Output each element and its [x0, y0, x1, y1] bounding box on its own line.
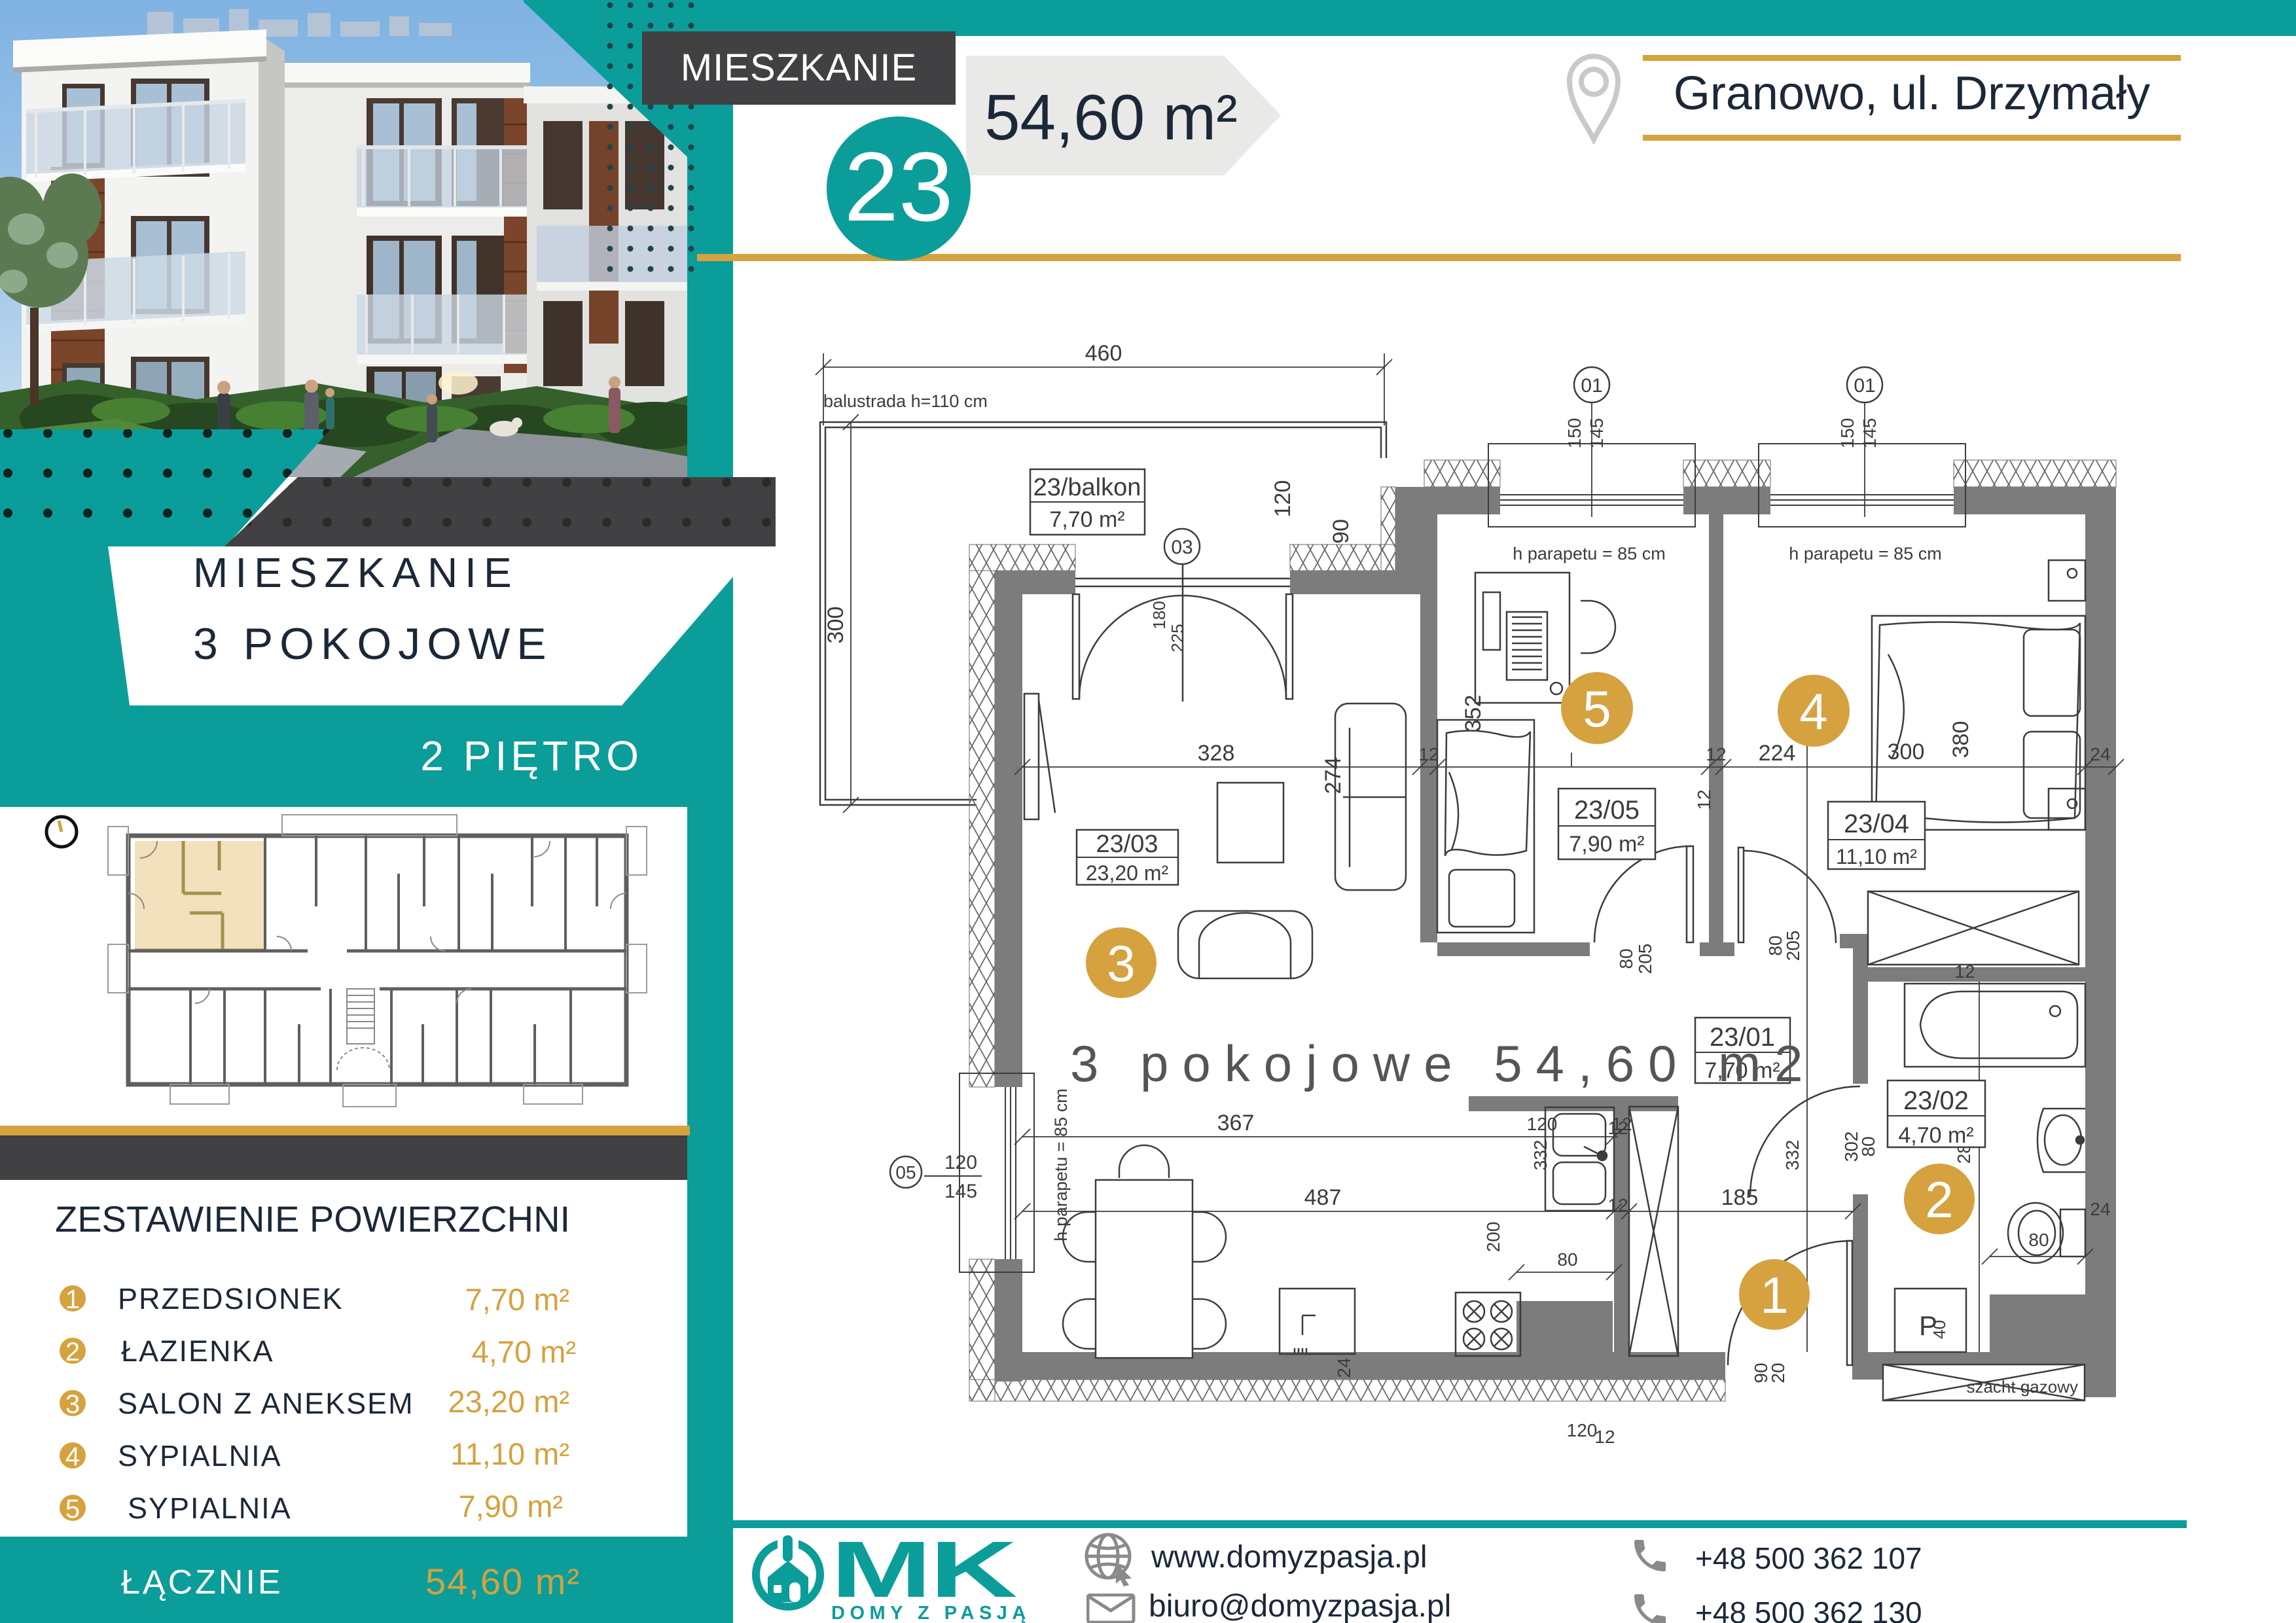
svg-text:225: 225 [1168, 624, 1187, 652]
svg-text:MK: MK [831, 1531, 1016, 1614]
svg-text:1: 1 [1760, 1266, 1788, 1324]
svg-text:24: 24 [2090, 744, 2110, 764]
svg-text:12: 12 [1706, 744, 1726, 764]
svg-text:24: 24 [2090, 1199, 2110, 1219]
svg-text:460: 460 [1085, 341, 1122, 366]
svg-text:120: 120 [1527, 1114, 1558, 1134]
svg-text:01: 01 [1854, 375, 1875, 397]
svg-text:12: 12 [1418, 744, 1439, 764]
svg-text:11,10 m²: 11,10 m² [1836, 845, 1917, 868]
svg-text:3: 3 [65, 1390, 80, 1419]
svg-text:40: 40 [1929, 1320, 1949, 1339]
svg-text:12: 12 [1694, 789, 1714, 810]
svg-text:12: 12 [1607, 1118, 1628, 1138]
svg-text:80: 80 [1858, 1136, 1878, 1156]
svg-text:2: 2 [1925, 1171, 1953, 1228]
svg-text:80: 80 [1616, 948, 1636, 969]
svg-text:23/balkon: 23/balkon [1033, 474, 1141, 501]
svg-text:120: 120 [944, 1152, 977, 1173]
svg-text:7,90 m²: 7,90 m² [1569, 832, 1644, 857]
svg-text:3 pokojowe 54,60 m2: 3 pokojowe 54,60 m2 [1070, 1035, 1817, 1092]
svg-text:23/02: 23/02 [1903, 1086, 1969, 1115]
svg-text:5: 5 [65, 1495, 80, 1524]
svg-text:80: 80 [2028, 1230, 2049, 1250]
svg-text:3 POKOJOWE: 3 POKOJOWE [193, 619, 553, 669]
svg-text:PRZEDSIONEK: PRZEDSIONEK [118, 1282, 344, 1315]
svg-text:03: 03 [1171, 537, 1193, 558]
svg-text:20: 20 [1768, 1363, 1788, 1383]
svg-text:23/05: 23/05 [1574, 796, 1640, 825]
svg-text:ŁAZIENKA: ŁAZIENKA [121, 1334, 274, 1368]
svg-text:23,20 m²: 23,20 m² [448, 1384, 569, 1419]
svg-text:7,90 m²: 7,90 m² [459, 1489, 563, 1524]
svg-text:01: 01 [1581, 375, 1602, 397]
svg-text:150: 150 [1837, 418, 1857, 449]
svg-text:h parapetu = 85 cm: h parapetu = 85 cm [1789, 544, 1941, 563]
svg-text:SYPIALNIA: SYPIALNIA [118, 1439, 282, 1472]
svg-text:h parapetu = 85 cm: h parapetu = 85 cm [1051, 1088, 1071, 1241]
svg-text:300: 300 [823, 607, 848, 644]
svg-text:SYPIALNIA: SYPIALNIA [128, 1491, 292, 1525]
svg-text:328: 328 [1198, 741, 1235, 766]
svg-text:7,70 m²: 7,70 m² [465, 1282, 569, 1317]
svg-text:205: 205 [1635, 944, 1655, 974]
svg-text:1: 1 [65, 1285, 80, 1314]
svg-text:185: 185 [1721, 1185, 1759, 1210]
svg-text:DOMY Z PASJĄ: DOMY Z PASJĄ [831, 1603, 1031, 1623]
svg-text:205: 205 [1783, 931, 1803, 961]
svg-text:352: 352 [1461, 695, 1486, 732]
svg-text:4,70 m²: 4,70 m² [1898, 1123, 1973, 1148]
svg-text:05: 05 [895, 1162, 916, 1183]
svg-text:145: 145 [1587, 418, 1607, 449]
svg-text:12: 12 [1607, 1195, 1628, 1215]
svg-text:120: 120 [1270, 480, 1295, 518]
svg-text:300: 300 [1888, 740, 1925, 764]
svg-text:12: 12 [1954, 961, 1975, 982]
svg-text:90: 90 [1329, 519, 1354, 544]
svg-text:12: 12 [1594, 1427, 1615, 1447]
svg-text:MIESZKANIE: MIESZKANIE [193, 549, 519, 596]
svg-text:380: 380 [1948, 721, 1973, 758]
svg-text:5: 5 [1583, 680, 1611, 738]
svg-text:7,70 m²: 7,70 m² [1049, 507, 1124, 532]
svg-text:145: 145 [1859, 418, 1880, 449]
svg-text:2: 2 [65, 1338, 80, 1366]
svg-text:120: 120 [1567, 1420, 1598, 1440]
svg-text:367: 367 [1217, 1111, 1255, 1135]
svg-text:SALON Z ANEKSEM: SALON Z ANEKSEM [118, 1387, 414, 1420]
svg-text:23/03: 23/03 [1096, 830, 1158, 858]
svg-text:224: 224 [1759, 741, 1796, 766]
svg-text:4: 4 [1799, 683, 1827, 740]
svg-text:11,10 m²: 11,10 m² [450, 1436, 569, 1471]
svg-text:180: 180 [1149, 601, 1169, 629]
svg-text:h parapetu = 85 cm: h parapetu = 85 cm [1513, 544, 1665, 563]
svg-text:23,20 m²: 23,20 m² [1086, 861, 1169, 885]
svg-text:szacht gazowy: szacht gazowy [1966, 1377, 2078, 1397]
svg-text:balustrada h=110 cm: balustrada h=110 cm [823, 391, 988, 411]
svg-text:23/04: 23/04 [1844, 810, 1909, 838]
svg-text:332: 332 [1782, 1140, 1803, 1171]
svg-text:4,70 m²: 4,70 m² [472, 1334, 576, 1369]
svg-text:3: 3 [1107, 935, 1135, 992]
svg-text:200: 200 [1483, 1222, 1503, 1253]
svg-text:80: 80 [1557, 1249, 1577, 1270]
svg-text:487: 487 [1304, 1185, 1342, 1210]
svg-text:274: 274 [1321, 757, 1346, 794]
svg-text:332: 332 [1530, 1140, 1551, 1171]
svg-text:150: 150 [1564, 418, 1585, 449]
svg-text:4: 4 [65, 1442, 80, 1471]
svg-text:145: 145 [944, 1181, 977, 1202]
svg-text:54,60 m²: 54,60 m² [984, 81, 1238, 153]
svg-text:24: 24 [1334, 1357, 1354, 1378]
